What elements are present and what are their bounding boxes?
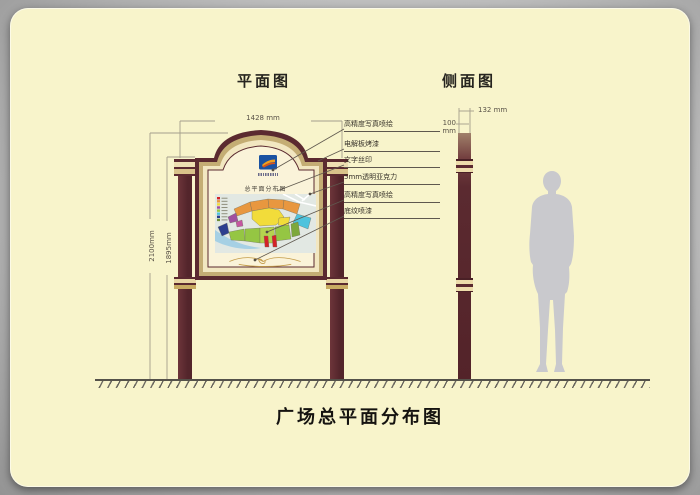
front-view-title: 平面图 xyxy=(209,70,319,91)
panel-subtitle: 总平面分布图 xyxy=(215,184,316,193)
dimension-width-label: 1428 mm xyxy=(215,114,311,122)
ornament-flourish xyxy=(222,254,308,269)
drawing-card: 平面图 侧面图 xyxy=(10,8,690,487)
design-sheet: 平面图 侧面图 xyxy=(0,0,700,495)
callout-acrylic: 5mm透明亚克力 xyxy=(344,172,440,185)
map-parcel xyxy=(278,217,290,226)
dimension-total-height-label: 2100mm xyxy=(148,219,156,273)
site-map xyxy=(215,194,316,253)
dimension-post-height-label: 1895mm xyxy=(165,221,173,275)
callout-silkscreen-text: 文字丝印 xyxy=(344,155,440,168)
sheet-title: 广场总平面分布图 xyxy=(10,403,700,429)
callout-base-paint: 底纹喷漆 xyxy=(344,206,440,219)
human-scale-silhouette xyxy=(510,168,594,381)
callout-photo-print-2: 高精度写真喷绘 xyxy=(344,190,440,203)
side-post-band-bottom xyxy=(456,278,473,292)
logo-caption-mark xyxy=(258,173,278,176)
sign-post-right xyxy=(330,168,344,380)
map-parcel xyxy=(264,236,269,247)
callout-photo-print-1: 高精度写真喷绘 xyxy=(344,119,440,132)
side-post-band-top xyxy=(456,159,473,173)
callout-baked-steel: 电解板烤漆 xyxy=(344,139,440,152)
brand-logo xyxy=(259,155,277,170)
side-view-title: 侧面图 xyxy=(414,70,524,91)
map-parcel xyxy=(245,228,260,243)
map-parcel xyxy=(268,199,284,209)
map-parcel xyxy=(272,235,277,247)
ground-hatching xyxy=(95,381,650,388)
map-parcel xyxy=(275,225,291,241)
dimension-depth-label: 132 mm xyxy=(476,106,509,114)
